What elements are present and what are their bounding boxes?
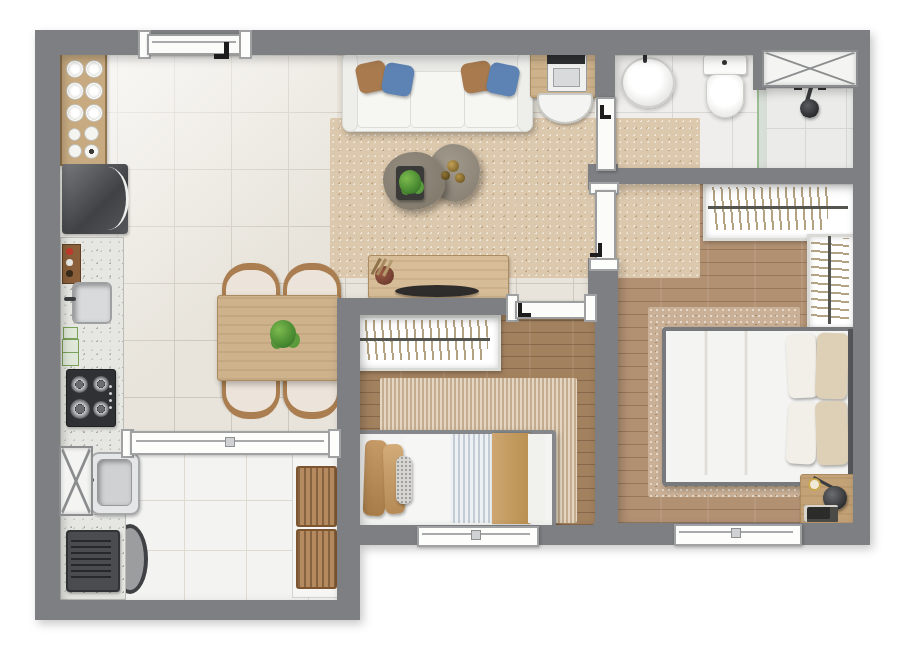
drying-rack xyxy=(296,466,337,527)
bed2-duvet-end xyxy=(528,434,545,523)
cup xyxy=(84,126,99,141)
wall-laundry-bottom xyxy=(35,600,360,620)
microwave-top xyxy=(547,55,585,64)
duct-x-icon xyxy=(764,52,856,85)
washbasin xyxy=(621,57,675,108)
lamp-hinge xyxy=(808,478,821,491)
master-duvet xyxy=(666,330,788,475)
drying-rack xyxy=(296,529,337,589)
window-latch xyxy=(731,528,741,538)
toilet-button xyxy=(722,60,727,65)
bedroom2-wardrobe-rail xyxy=(360,338,490,341)
plant xyxy=(399,170,421,194)
pass-window-post xyxy=(328,429,341,458)
duct-shaft xyxy=(59,446,93,516)
bathroom-door xyxy=(596,97,616,171)
plate xyxy=(66,104,84,122)
duct-x-icon xyxy=(61,448,91,514)
entry-door-handle xyxy=(214,54,229,59)
cooktop-burner xyxy=(71,376,88,393)
bedroom2-door-handle xyxy=(518,313,531,317)
shower-glass-partition xyxy=(757,88,767,168)
decor-vase xyxy=(455,173,465,183)
sofa-pillow-blue xyxy=(485,61,521,98)
cup xyxy=(84,144,99,159)
master-door-handle xyxy=(590,253,602,257)
bathroom-door-handle xyxy=(600,115,611,119)
master-door-cap xyxy=(589,258,619,271)
plate xyxy=(85,60,103,78)
duct-shaft xyxy=(762,50,858,87)
sofa-arm-left xyxy=(342,52,358,132)
plate xyxy=(66,82,84,100)
cup xyxy=(68,144,82,158)
bedroom2-door-cap xyxy=(584,294,597,322)
sofa-seat-cushion xyxy=(410,71,465,128)
shower-head xyxy=(800,99,819,118)
desk-bottles xyxy=(532,44,538,53)
plate xyxy=(85,82,103,100)
kitchen-faucet xyxy=(64,297,76,301)
window-latch xyxy=(225,437,235,447)
spice-jars xyxy=(66,248,73,255)
decor-vase xyxy=(441,171,450,180)
master-pillow xyxy=(785,333,818,398)
microwave-door xyxy=(553,68,580,87)
plate xyxy=(85,104,103,122)
window-latch xyxy=(471,530,481,540)
entry-door-post xyxy=(239,30,252,59)
living-rug xyxy=(330,118,700,278)
dining-plant xyxy=(270,320,296,348)
books-tray xyxy=(804,505,838,522)
master-pillow xyxy=(815,332,849,399)
master-pillow xyxy=(815,400,849,465)
sofa-pillow-blue xyxy=(381,62,416,98)
cooktop-knobs xyxy=(109,385,112,388)
bed2-sheet xyxy=(405,435,453,522)
basin-faucet xyxy=(643,50,647,63)
floor-plan xyxy=(0,0,900,655)
master-pillow xyxy=(785,401,818,464)
cooktop-burner xyxy=(93,401,109,417)
master-wardrobe-rail-top xyxy=(708,206,848,209)
kitchen-sink xyxy=(72,282,112,324)
bed2-striped-duvet xyxy=(450,434,494,523)
cutting-boards xyxy=(63,327,78,339)
master-headboard xyxy=(848,329,853,476)
master-wardrobe-rail-right xyxy=(828,236,831,324)
bed2-tan-blanket xyxy=(492,433,530,524)
laundry-tub-basin xyxy=(97,459,132,506)
washing-machine-vents xyxy=(71,536,111,582)
sideboard-tray xyxy=(395,285,479,297)
wall-left xyxy=(35,30,60,620)
cooktop-burner xyxy=(93,376,109,392)
decor-vase xyxy=(447,160,459,172)
toilet-bowl xyxy=(706,74,744,118)
cup xyxy=(68,128,81,141)
bed2-pillow-accent xyxy=(396,456,412,504)
entry-door xyxy=(147,34,245,55)
cooktop-burner xyxy=(70,399,90,419)
toilet-tank xyxy=(703,55,747,75)
plate xyxy=(66,60,84,78)
